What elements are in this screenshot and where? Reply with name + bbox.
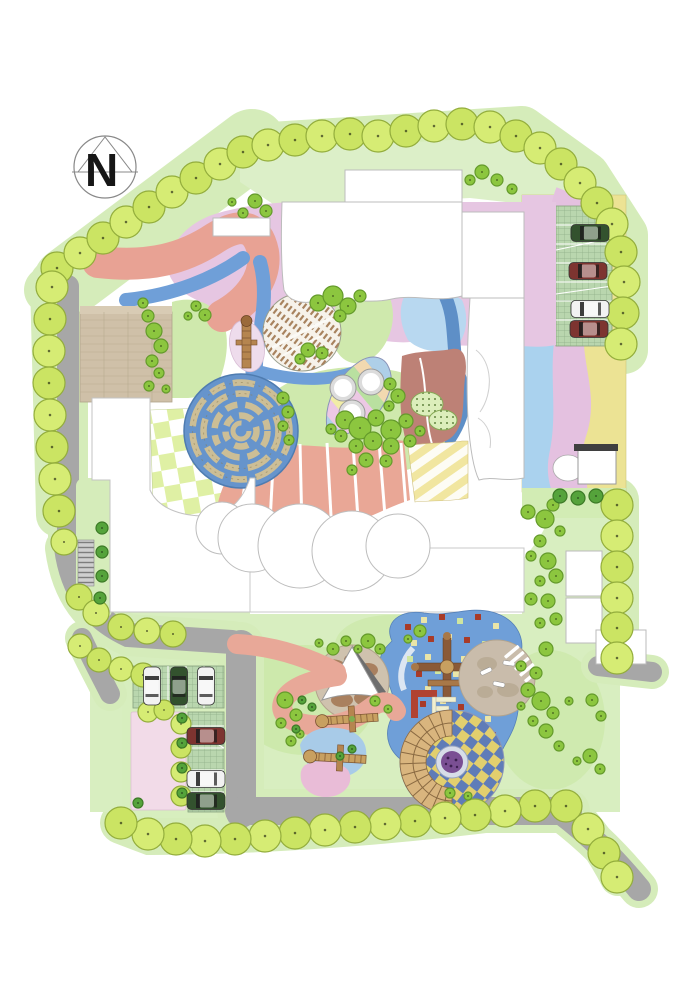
car [187, 728, 225, 745]
perimeter-tree [309, 814, 341, 846]
perimeter-tree [249, 820, 281, 852]
dark-tree [571, 491, 585, 505]
rubber-tile [475, 614, 481, 620]
tree [540, 553, 556, 569]
tree [359, 453, 373, 467]
perimeter-tree [36, 271, 68, 303]
tree [277, 392, 289, 404]
tree [260, 205, 272, 217]
car-windshield [196, 729, 200, 743]
tree [547, 707, 559, 719]
tree [415, 426, 425, 436]
tree [335, 430, 347, 442]
car-rear-window [146, 694, 159, 697]
tree [248, 194, 262, 208]
tree [138, 298, 148, 308]
tree [517, 702, 525, 710]
perimeter-tree [446, 108, 478, 140]
rubber-tile [421, 617, 427, 623]
dark-tree [298, 696, 306, 704]
car-windshield [145, 676, 159, 680]
tree [326, 424, 336, 434]
rubber-tile [457, 618, 463, 624]
tree [583, 749, 597, 763]
building-north-a [213, 218, 270, 236]
dark-tree [553, 489, 567, 503]
steps-hatch [78, 540, 94, 586]
tree [541, 594, 555, 608]
car-rear-window [214, 795, 217, 808]
car-windshield [196, 794, 200, 808]
perimeter-tree [51, 529, 77, 555]
car-windshield [579, 322, 583, 336]
perimeter-tree [160, 621, 186, 647]
tree [162, 385, 170, 393]
tree [238, 208, 248, 218]
rubber-tile [493, 623, 499, 629]
perimeter-tree [607, 297, 639, 329]
tree [144, 381, 154, 391]
tree [341, 636, 351, 646]
perimeter-tree [601, 642, 633, 674]
tree [368, 410, 384, 426]
perimeter-tree [43, 495, 75, 527]
rubber-tile [416, 671, 422, 677]
tree [596, 711, 606, 721]
tree [521, 505, 535, 519]
tree [539, 642, 553, 656]
tree [349, 439, 363, 453]
car [144, 667, 161, 705]
rubber-tile [485, 716, 491, 722]
tree [521, 683, 535, 697]
perimeter-tree [34, 399, 66, 431]
dark-tree [177, 763, 187, 773]
perimeter-tree [160, 823, 192, 855]
car [187, 793, 225, 810]
dark-tree [133, 798, 143, 808]
tree [535, 576, 545, 586]
tree [532, 692, 550, 710]
tree [391, 389, 405, 403]
perimeter-tree [33, 335, 65, 367]
car [171, 667, 188, 705]
tree [384, 401, 394, 411]
tree [384, 705, 392, 713]
tree [295, 354, 305, 364]
dark-tree [94, 592, 106, 604]
kiosk-canopy [574, 444, 618, 451]
tree [380, 455, 392, 467]
perimeter-tree [601, 520, 633, 552]
tree [539, 724, 553, 738]
car-windshield [196, 772, 200, 786]
tree [555, 526, 565, 536]
car-rear-window [596, 265, 599, 278]
rubber-tile [439, 614, 445, 620]
car-windshield [172, 676, 186, 680]
perimeter-tree [369, 808, 401, 840]
rubber-tile [458, 704, 464, 710]
car-windshield [199, 676, 213, 680]
rubber-tile [405, 624, 411, 630]
tree [146, 355, 158, 367]
perimeter-tree [519, 790, 551, 822]
yellow-stripe-zone [408, 441, 468, 502]
rubber-tile [453, 671, 459, 677]
tree [399, 414, 413, 428]
perimeter-tree [601, 861, 633, 893]
perimeter-tree [83, 600, 109, 626]
rubber-tile [420, 701, 426, 707]
perimeter-tree [459, 799, 491, 831]
dark-tree [336, 752, 344, 760]
perimeter-tree [279, 817, 311, 849]
dark-tree [348, 745, 356, 753]
tree [370, 696, 380, 706]
dark-tree [589, 489, 603, 503]
tree [327, 643, 339, 655]
tree [528, 716, 538, 726]
mosaic-center [441, 751, 463, 773]
perimeter-tree [36, 431, 68, 463]
tree [276, 718, 286, 728]
perimeter-tree [418, 110, 450, 142]
site-plan-canvas: N [0, 0, 699, 989]
dark-tree [96, 570, 108, 582]
perimeter-tree [39, 463, 71, 495]
planted-mound-b [429, 410, 457, 430]
perimeter-tree [109, 657, 133, 681]
tree [184, 312, 192, 320]
perimeter-tree [108, 614, 134, 640]
tree [530, 667, 542, 679]
dark-tree [292, 725, 300, 733]
car-rear-window [173, 694, 186, 697]
tree [525, 593, 537, 605]
perimeter-tree [219, 823, 251, 855]
perimeter-tree [87, 648, 111, 672]
dark-tree [96, 522, 108, 534]
checker-circle-plaza [400, 710, 504, 814]
rubber-tile [407, 656, 413, 662]
car [571, 301, 609, 318]
tree [491, 174, 503, 186]
tree [465, 175, 475, 185]
tree [199, 309, 211, 321]
tree [536, 510, 554, 528]
tree [316, 347, 328, 359]
tree [384, 378, 396, 390]
tree [554, 741, 564, 751]
tree [277, 692, 293, 708]
tree [315, 639, 323, 647]
building-north-b [345, 170, 462, 202]
tree [290, 709, 302, 721]
car-rear-window [598, 303, 601, 316]
tree [146, 323, 162, 339]
perimeter-tree [306, 120, 338, 152]
perimeter-tree [601, 582, 633, 614]
tree [516, 661, 526, 671]
site-plan-svg: N [0, 0, 699, 989]
tree [534, 535, 546, 547]
rubber-tile [464, 637, 470, 643]
car-windshield [580, 302, 584, 316]
tree [586, 694, 598, 706]
perimeter-tree [605, 328, 637, 360]
tree [507, 184, 517, 194]
tree [228, 198, 236, 206]
car-windshield [580, 226, 584, 240]
building-north-east [462, 212, 524, 298]
tree [595, 764, 605, 774]
rubber-tile [425, 654, 431, 660]
tree [464, 792, 472, 800]
perimeter-tree [33, 367, 65, 399]
dark-tree [177, 738, 187, 748]
tree [375, 644, 385, 654]
north-label: N [85, 144, 118, 196]
tree [414, 625, 426, 637]
perimeter-tree [339, 811, 371, 843]
tree [404, 635, 412, 643]
perimeter-tree [429, 802, 461, 834]
perimeter-tree [399, 805, 431, 837]
perimeter-tree [189, 825, 221, 857]
perimeter-tree [334, 118, 366, 150]
tree [282, 406, 294, 418]
tree [445, 788, 455, 798]
tree [286, 736, 296, 746]
car-rear-window [598, 227, 601, 240]
perimeter-tree [608, 266, 640, 298]
tree [154, 368, 164, 378]
tree [154, 339, 168, 353]
perimeter-tree [605, 236, 637, 268]
tree [565, 697, 573, 705]
rubber-tile [428, 636, 434, 642]
car [571, 225, 609, 242]
car [569, 263, 607, 280]
perimeter-tree [489, 795, 521, 827]
building-north-main [281, 202, 462, 302]
tree [381, 420, 401, 440]
tree [364, 432, 382, 450]
dark-tree [177, 788, 187, 798]
perimeter-tree [601, 612, 633, 644]
dark-tree [308, 703, 316, 711]
tree [535, 618, 545, 628]
north-compass: N [72, 136, 138, 198]
perimeter-tree [601, 489, 633, 521]
car [570, 321, 608, 338]
dark-tree [177, 713, 187, 723]
tree [549, 569, 563, 583]
tree [347, 465, 357, 475]
tree [550, 613, 562, 625]
perimeter-tree [362, 120, 394, 152]
perimeter-tree [34, 303, 66, 335]
perimeter-tree [105, 807, 137, 839]
tree [278, 421, 288, 431]
tree [191, 301, 201, 311]
tree [354, 645, 362, 653]
tree [334, 310, 346, 322]
car-rear-window [214, 730, 217, 743]
car-windshield [578, 264, 582, 278]
tree [284, 435, 294, 445]
car-rear-window [597, 323, 600, 336]
perimeter-tree [390, 115, 422, 147]
tree [475, 165, 489, 179]
tree [354, 290, 366, 302]
dark-tree [96, 546, 108, 558]
tree [573, 757, 581, 765]
car-rear-window [214, 773, 217, 786]
tree [526, 551, 536, 561]
car [187, 771, 225, 788]
building-east-wing [467, 298, 524, 480]
paved-plaza-nw [80, 306, 172, 402]
tree [142, 310, 154, 322]
car [198, 667, 215, 705]
perimeter-tree [601, 551, 633, 583]
tree [361, 634, 375, 648]
car-rear-window [200, 694, 213, 697]
perimeter-tree [134, 618, 160, 644]
building-se-a [566, 551, 602, 596]
tree [404, 435, 416, 447]
tree [383, 438, 399, 454]
